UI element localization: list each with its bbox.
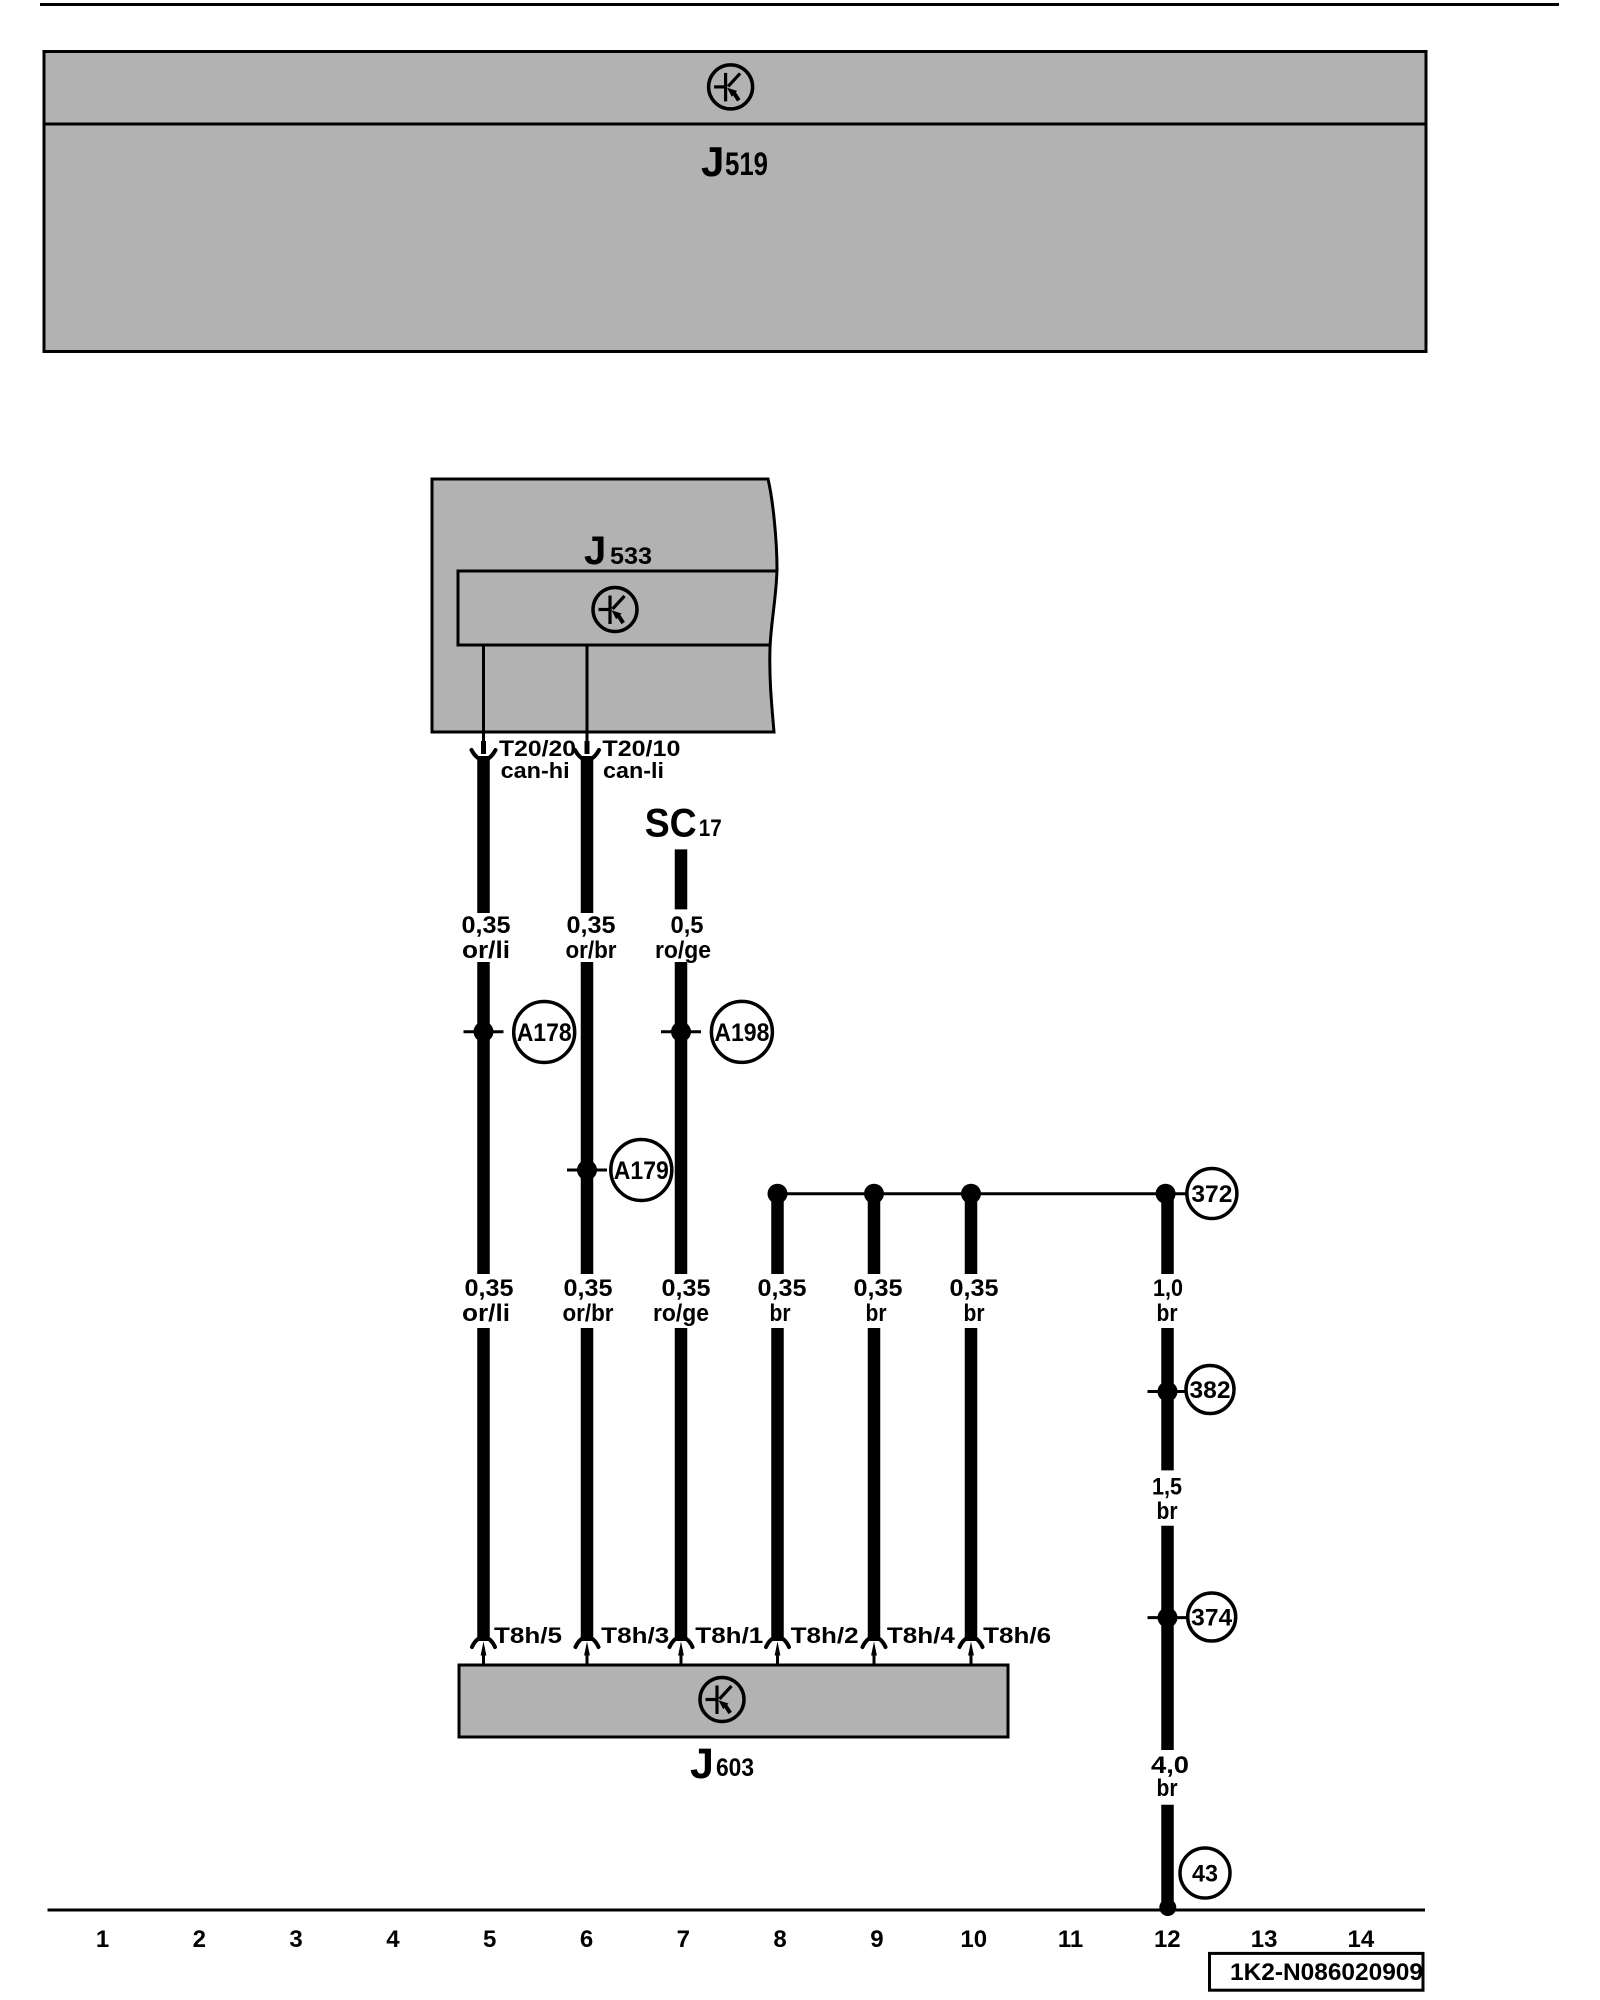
svg-text:8: 8 — [773, 1926, 786, 1953]
svg-text:ro/ge: ro/ge — [653, 1300, 709, 1327]
svg-text:374: 374 — [1191, 1605, 1233, 1632]
svg-text:ro/ge: ro/ge — [655, 937, 711, 964]
svg-text:or/br: or/br — [566, 937, 617, 964]
svg-text:1: 1 — [96, 1926, 109, 1953]
svg-text:4: 4 — [386, 1926, 400, 1953]
svg-text:A198: A198 — [714, 1019, 769, 1047]
svg-text:0,35: 0,35 — [567, 912, 616, 939]
svg-text:SC: SC — [645, 802, 697, 846]
svg-text:0,35: 0,35 — [662, 1275, 711, 1302]
svg-text:3: 3 — [289, 1926, 302, 1953]
svg-text:14: 14 — [1348, 1926, 1375, 1953]
svg-text:7: 7 — [677, 1926, 690, 1953]
svg-text:can-hi: can-hi — [501, 758, 570, 783]
svg-text:11: 11 — [1058, 1926, 1083, 1953]
svg-text:0,35: 0,35 — [854, 1275, 903, 1302]
svg-text:br: br — [1157, 1498, 1178, 1525]
svg-text:br: br — [1157, 1775, 1178, 1802]
svg-text:0,5: 0,5 — [671, 912, 704, 939]
svg-text:or/li: or/li — [462, 1300, 510, 1327]
svg-text:br: br — [770, 1300, 791, 1327]
svg-text:T8h/1: T8h/1 — [695, 1623, 763, 1648]
svg-text:43: 43 — [1192, 1861, 1218, 1888]
svg-text:382: 382 — [1190, 1377, 1231, 1404]
svg-text:1K2-N086020909: 1K2-N086020909 — [1230, 1959, 1423, 1986]
svg-text:A178: A178 — [517, 1019, 572, 1047]
svg-text:2: 2 — [193, 1926, 206, 1953]
svg-text:0,35: 0,35 — [564, 1275, 613, 1302]
svg-text:12: 12 — [1154, 1926, 1181, 1953]
svg-text:J: J — [701, 138, 724, 185]
svg-text:or/li: or/li — [462, 937, 510, 964]
svg-text:br: br — [964, 1300, 985, 1327]
svg-text:J: J — [584, 529, 606, 573]
svg-text:10: 10 — [960, 1926, 987, 1953]
svg-text:T8h/2: T8h/2 — [791, 1623, 859, 1648]
svg-text:519: 519 — [725, 146, 768, 182]
svg-text:T8h/3: T8h/3 — [601, 1623, 669, 1648]
svg-text:or/br: or/br — [563, 1300, 614, 1327]
svg-text:T8h/4: T8h/4 — [887, 1623, 956, 1648]
svg-text:17: 17 — [699, 815, 722, 842]
svg-text:5: 5 — [483, 1926, 496, 1953]
svg-text:603: 603 — [716, 1754, 754, 1782]
svg-text:533: 533 — [610, 543, 652, 570]
svg-text:0,35: 0,35 — [465, 1275, 514, 1302]
svg-text:13: 13 — [1251, 1926, 1278, 1953]
svg-text:0,35: 0,35 — [462, 912, 511, 939]
svg-text:br: br — [866, 1300, 887, 1327]
svg-text:A179: A179 — [614, 1157, 669, 1185]
svg-text:can-li: can-li — [603, 758, 664, 783]
svg-text:1,0: 1,0 — [1153, 1275, 1183, 1302]
svg-text:1,5: 1,5 — [1152, 1474, 1182, 1501]
svg-text:372: 372 — [1191, 1181, 1232, 1208]
svg-text:9: 9 — [870, 1926, 883, 1953]
svg-text:0,35: 0,35 — [950, 1275, 999, 1302]
svg-text:T8h/5: T8h/5 — [494, 1623, 562, 1648]
svg-text:T8h/6: T8h/6 — [983, 1623, 1051, 1648]
svg-text:br: br — [1157, 1300, 1178, 1327]
svg-text:J: J — [690, 1740, 714, 1788]
svg-text:0,35: 0,35 — [758, 1275, 807, 1302]
svg-text:6: 6 — [580, 1926, 593, 1953]
